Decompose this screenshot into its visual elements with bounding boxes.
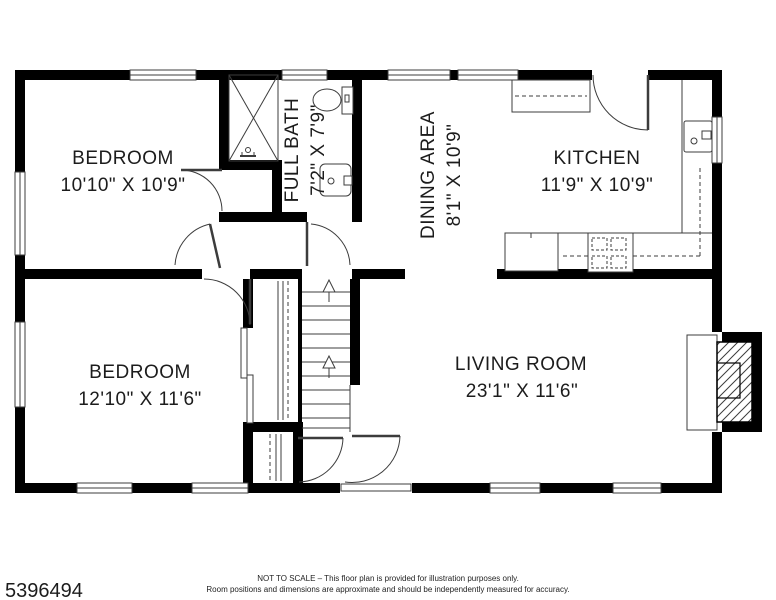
room-full-bath: FULL BATH 7'2" X 7'9" — [282, 98, 329, 203]
staircase — [302, 280, 350, 432]
window-icon — [282, 70, 327, 80]
window-icon — [15, 172, 25, 255]
room-dims: 12'10" X 11'6" — [78, 389, 202, 410]
window-icon — [15, 322, 25, 407]
room-label: LIVING ROOM — [455, 354, 587, 375]
disclaimer-line-2: Room positions and dimensions are approx… — [206, 585, 569, 594]
interior-walls — [15, 70, 722, 483]
door-bedroom1-closet — [181, 170, 222, 211]
room-dims: 23'1" X 11'6" — [466, 381, 578, 402]
room-dining-area: DINING AREA 8'1" X 10'9" — [418, 111, 465, 239]
window-icon — [77, 483, 132, 493]
window-icon — [490, 483, 540, 493]
stairs-up-arrow-icon — [323, 280, 335, 302]
window-icon — [458, 70, 518, 80]
listing-id: 5396494 — [5, 580, 83, 600]
exterior-walls — [15, 70, 762, 493]
footer: 5396494 NOT TO SCALE – This floor plan i… — [5, 574, 570, 600]
floor-plan-page: BEDROOM 10'10" X 10'9" FULL BATH 7'2" X … — [0, 0, 776, 600]
room-bedroom-top-left: BEDROOM 10'10" X 10'9" — [61, 148, 186, 196]
fireplace-icon — [687, 335, 752, 430]
cabinet-icon — [505, 233, 558, 271]
room-dims: 8'1" X 10'9" — [444, 124, 465, 227]
room-bedroom-bottom-left: BEDROOM 12'10" X 11'6" — [78, 362, 202, 410]
shower-icon — [229, 75, 278, 161]
room-label: DINING AREA — [418, 111, 439, 239]
room-label: KITCHEN — [554, 148, 641, 169]
window-icon — [130, 70, 196, 80]
window-icon — [192, 483, 248, 493]
room-living-room: LIVING ROOM 23'1" X 11'6" — [455, 354, 587, 402]
kitchen-sink-icon — [684, 121, 712, 152]
door-kitchen — [593, 75, 648, 130]
door-bath — [307, 222, 350, 266]
entry-closet — [270, 434, 281, 481]
window-icon — [712, 117, 722, 163]
stairs-up-arrow-icon — [323, 356, 335, 378]
floor-plan: BEDROOM 10'10" X 10'9" FULL BATH 7'2" X … — [0, 0, 776, 600]
front-door-slab-icon — [341, 484, 411, 491]
window-icon — [388, 70, 450, 80]
door-entry-left — [298, 438, 343, 482]
room-dims: 11'9" X 10'9" — [541, 175, 653, 196]
room-label: FULL BATH — [282, 98, 303, 203]
room-kitchen: KITCHEN 11'9" X 10'9" — [541, 148, 653, 196]
door-bedroom1 — [175, 224, 220, 268]
window-icon — [613, 483, 661, 493]
stove-icon — [588, 233, 633, 272]
sliding-door-icon — [241, 328, 253, 423]
room-label: BEDROOM — [72, 148, 174, 169]
room-dims: 7'2" X 7'9" — [308, 104, 329, 196]
door-entry-front — [345, 436, 400, 483]
room-label: BEDROOM — [89, 362, 191, 383]
room-dims: 10'10" X 10'9" — [61, 175, 186, 196]
disclaimer-line-1: NOT TO SCALE – This floor plan is provid… — [257, 574, 519, 583]
windows — [15, 70, 722, 493]
